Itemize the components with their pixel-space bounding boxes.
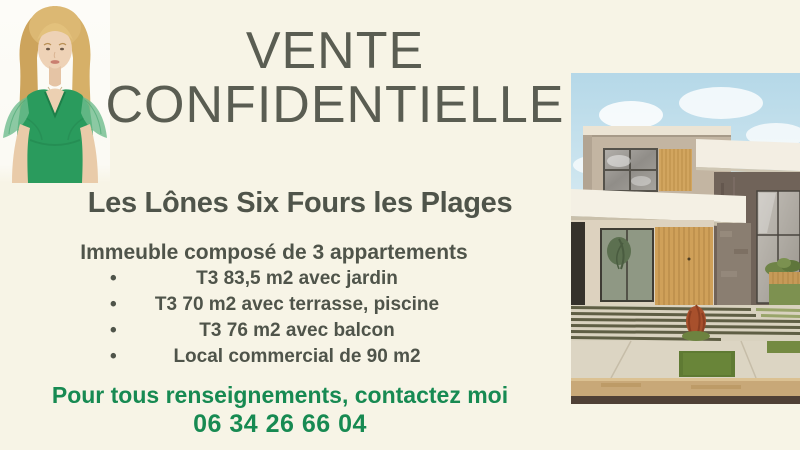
agent-photo bbox=[0, 0, 110, 183]
list-item-label: T3 70 m2 avec terrasse, piscine bbox=[155, 294, 439, 315]
title-line-1: VENTE bbox=[105, 24, 565, 78]
apartment-list: • T3 83,5 m2 avec jardin • T3 70 m2 avec… bbox=[108, 266, 486, 370]
page-title: VENTE CONFIDENTIELLE bbox=[105, 24, 565, 132]
list-item: • Local commercial de 90 m2 bbox=[108, 344, 486, 370]
title-line-2: CONFIDENTIELLE bbox=[105, 78, 565, 132]
list-item-label: T3 83,5 m2 avec jardin bbox=[196, 268, 398, 289]
bullet-dot-icon: • bbox=[110, 318, 117, 344]
flyer-page: VENTE CONFIDENTIELLE Les Lônes Six Fours… bbox=[0, 0, 800, 450]
list-item-label: T3 76 m2 avec balcon bbox=[199, 320, 394, 341]
house-photo bbox=[571, 73, 800, 404]
bullet-dot-icon: • bbox=[110, 292, 117, 318]
list-item: • T3 70 m2 avec terrasse, piscine bbox=[108, 292, 486, 318]
location-heading: Les Lônes Six Fours les Plages bbox=[40, 185, 560, 221]
list-item-label: Local commercial de 90 m2 bbox=[173, 346, 420, 367]
description-intro: Immeuble composé de 3 appartements bbox=[54, 241, 494, 265]
bullet-dot-icon: • bbox=[110, 344, 117, 370]
contact-cta: Pour tous renseignements, contactez moi bbox=[30, 381, 530, 409]
phone-number: 06 34 26 66 04 bbox=[30, 409, 530, 439]
bullet-dot-icon: • bbox=[110, 266, 117, 292]
list-item: • T3 83,5 m2 avec jardin bbox=[108, 266, 486, 292]
list-item: • T3 76 m2 avec balcon bbox=[108, 318, 486, 344]
